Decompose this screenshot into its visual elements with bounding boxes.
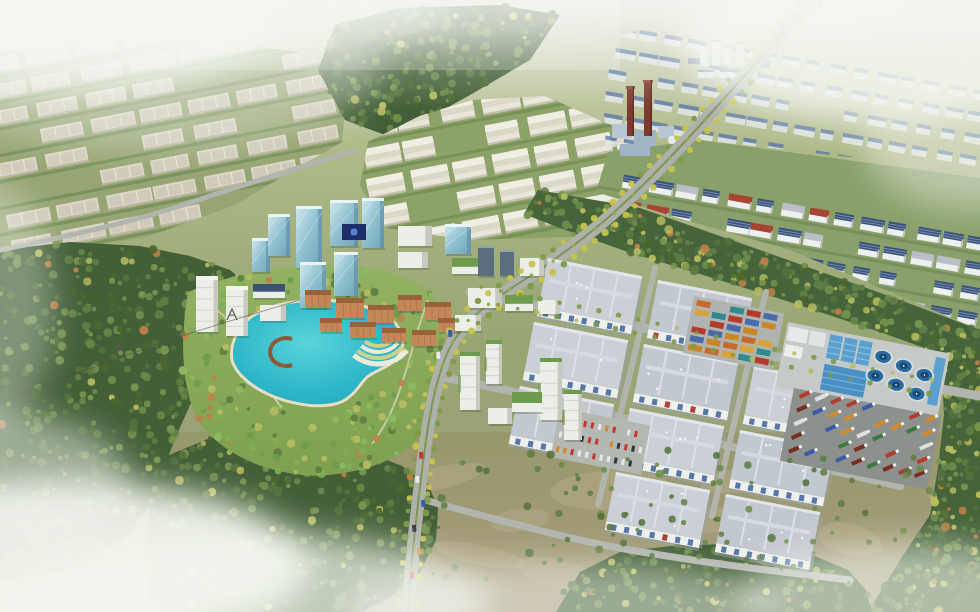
tree-canopy — [398, 529, 402, 533]
median-tree — [451, 340, 455, 344]
tree-canopy — [251, 486, 258, 493]
tree-canopy — [193, 464, 201, 472]
brick-building — [382, 328, 407, 344]
dark-tower — [478, 246, 494, 276]
tree-canopy — [331, 525, 336, 530]
roadside-tree — [850, 363, 856, 369]
median-tree — [487, 303, 491, 307]
park-tree — [196, 415, 203, 422]
tree-canopy — [87, 252, 92, 257]
tree-canopy — [88, 395, 94, 401]
tree-canopy — [145, 364, 149, 368]
roadside-tree — [613, 326, 619, 332]
park-tree — [347, 463, 353, 469]
tree-canopy — [953, 351, 962, 360]
window-band — [540, 383, 562, 384]
tree-canopy — [179, 464, 185, 470]
roadside-tree — [949, 381, 953, 385]
scrub-tree — [564, 491, 568, 495]
roadside-tree — [554, 314, 560, 320]
tree-canopy — [138, 291, 146, 299]
tree-canopy — [294, 478, 300, 484]
scrub-tree — [664, 447, 671, 454]
facade-line — [375, 310, 376, 323]
scrub-tree — [962, 526, 967, 531]
tree-canopy — [237, 467, 245, 475]
park-tree — [361, 439, 367, 445]
boulevard-tree — [668, 166, 675, 173]
tree-canopy — [152, 290, 158, 296]
facade-line — [418, 335, 419, 346]
tree-canopy — [627, 239, 633, 245]
park-tree — [281, 410, 286, 415]
boulevard-tree — [610, 199, 617, 206]
tree-canopy — [941, 462, 949, 470]
roadside-tree — [518, 293, 522, 297]
scrub-tree — [611, 532, 615, 536]
tree-canopy — [692, 265, 700, 273]
scrub-tree — [609, 486, 614, 491]
tree-canopy — [961, 483, 968, 490]
tree-canopy — [162, 283, 170, 291]
tree-canopy — [218, 452, 224, 458]
window-band — [564, 400, 582, 401]
median-tree — [428, 414, 432, 418]
park-tree — [208, 393, 216, 401]
window-band — [226, 296, 248, 297]
building-shade — [281, 305, 286, 321]
facade-line — [350, 303, 351, 318]
park-tree — [393, 406, 397, 410]
park-tree — [248, 452, 252, 456]
roadside-tree — [848, 377, 852, 381]
tree-canopy — [952, 405, 961, 414]
tree-canopy — [353, 478, 357, 482]
tree-canopy — [901, 299, 905, 303]
tree-canopy — [160, 389, 166, 395]
tree-canopy — [137, 284, 141, 288]
scrub-tree — [944, 515, 948, 519]
tree-canopy — [808, 303, 817, 312]
tower-cap — [252, 238, 270, 241]
tree-canopy — [608, 226, 614, 232]
median-tree — [412, 543, 416, 547]
scrub-tree — [820, 455, 827, 462]
park-tree — [378, 413, 385, 420]
tree-canopy — [172, 324, 176, 328]
glass-building — [296, 206, 323, 270]
park-tree — [260, 452, 264, 456]
tree-canopy — [389, 466, 396, 473]
scrub-tree — [820, 469, 827, 476]
roadside-tree — [831, 359, 836, 364]
scrub-tree — [625, 457, 629, 461]
scrub-tree — [476, 466, 483, 473]
brick-building — [350, 322, 377, 340]
tree-canopy — [969, 497, 974, 502]
park-tree — [194, 380, 201, 387]
roadside-tree — [655, 322, 659, 326]
tree-canopy — [626, 231, 634, 239]
tree-canopy — [336, 486, 343, 493]
tree-canopy — [537, 201, 541, 205]
tree-canopy — [391, 534, 396, 539]
tower-cap — [445, 224, 471, 227]
park-tree — [387, 391, 392, 396]
roadside-tree — [772, 346, 778, 352]
park-tree — [308, 423, 316, 431]
boulevard-tree — [420, 405, 425, 410]
dark-building — [500, 250, 515, 278]
boulevard-tree — [407, 495, 413, 501]
roadside-tree — [947, 395, 951, 399]
boulevard-tree — [660, 176, 665, 181]
tree-canopy — [111, 429, 115, 433]
tree-canopy — [107, 316, 114, 323]
tree-canopy — [36, 409, 41, 414]
tree-canopy — [643, 221, 647, 225]
tree-canopy — [947, 425, 951, 429]
building-shadow — [565, 440, 583, 442]
boulevard-tree — [612, 222, 618, 228]
roadside-tree — [769, 360, 774, 365]
facade-line — [370, 327, 371, 338]
tree-canopy — [528, 203, 536, 211]
tree-canopy — [970, 528, 975, 533]
tree-canopy — [210, 262, 215, 267]
tree-canopy — [924, 527, 931, 534]
tree-canopy — [233, 486, 240, 493]
tree-canopy — [350, 116, 356, 122]
tree-canopy — [286, 484, 290, 488]
scrub-tree — [900, 528, 907, 535]
tree-canopy — [376, 508, 383, 515]
park-tree — [345, 449, 349, 453]
park-tree — [249, 444, 256, 451]
boulevard-tree — [442, 384, 447, 389]
park-tree — [358, 448, 366, 456]
tree-canopy — [221, 492, 227, 498]
tree-canopy — [86, 339, 95, 348]
plant-building — [620, 144, 650, 156]
tree-canopy — [65, 347, 70, 352]
boulevard-tree — [433, 433, 438, 438]
park-tree — [368, 394, 375, 401]
scrub-tree — [535, 466, 541, 472]
tree-canopy — [639, 235, 646, 242]
park-tree — [333, 416, 340, 423]
median-tree — [631, 193, 635, 197]
tree-canopy — [284, 507, 290, 513]
scrub-tree — [681, 499, 687, 505]
window-band — [486, 358, 502, 359]
tree-canopy — [859, 285, 865, 291]
scrub-tree — [524, 502, 532, 510]
tower-roof — [196, 276, 218, 280]
tree-canopy — [203, 458, 207, 462]
facade-line — [444, 323, 445, 332]
tree-canopy — [360, 116, 367, 123]
tree-canopy — [781, 293, 785, 297]
scrub-tree — [811, 467, 816, 472]
boulevard-tree — [462, 339, 467, 344]
boulevard-tree — [632, 203, 637, 208]
window-band — [196, 287, 218, 288]
tree-canopy — [135, 391, 142, 398]
masterplan-scene: Aerial 3D rendering of a large eco-indus… — [0, 0, 980, 612]
tree-canopy — [160, 259, 164, 263]
tree-canopy — [580, 208, 586, 214]
tree-canopy — [117, 326, 123, 332]
tree-canopy — [660, 258, 665, 263]
scrub-tree — [572, 485, 578, 491]
blue-roof-building — [253, 284, 286, 300]
tree-canopy — [353, 517, 360, 524]
facade-line — [381, 310, 382, 323]
park-tree — [300, 441, 308, 449]
tree-canopy — [554, 212, 559, 217]
building-shadow — [506, 311, 534, 313]
park-tree — [390, 426, 395, 431]
roadside-tree — [557, 301, 561, 305]
tree-canopy — [117, 280, 122, 285]
building-shade — [214, 276, 218, 332]
park-tree — [221, 397, 226, 402]
tree-canopy — [935, 322, 939, 326]
scrub-tree — [926, 487, 933, 494]
facade-line — [416, 300, 417, 311]
tree-canopy — [318, 488, 325, 495]
tree-canopy — [950, 515, 955, 520]
building-shadow — [487, 384, 503, 386]
brick-roof — [382, 328, 406, 333]
tree-canopy — [146, 293, 153, 300]
facade-line — [326, 323, 327, 332]
scrub-tree — [835, 516, 840, 521]
scrub-tree — [713, 518, 716, 521]
facade-line — [388, 310, 389, 323]
window-band — [460, 375, 480, 376]
tree-canopy — [184, 462, 192, 470]
dark-tower — [500, 250, 514, 276]
window-band — [564, 430, 582, 431]
tree-canopy — [754, 287, 763, 296]
tree-canopy — [936, 459, 942, 465]
boulevard-tree — [549, 269, 556, 276]
tree-canopy — [404, 467, 411, 474]
tree-canopy — [97, 335, 102, 340]
tree-canopy — [181, 393, 188, 400]
tree-canopy — [911, 333, 919, 341]
tree-canopy — [676, 254, 685, 263]
tower-green-building — [484, 340, 503, 386]
tree-canopy — [664, 225, 673, 234]
scrub-tree — [749, 481, 753, 485]
boulevard-tree — [704, 127, 711, 134]
tree-canopy — [187, 273, 195, 281]
tree-canopy — [969, 419, 974, 424]
tree-canopy — [146, 461, 151, 466]
tree-canopy — [709, 239, 714, 244]
boulevard-tree — [404, 521, 410, 527]
scrub-tree — [601, 467, 607, 473]
tree-canopy — [962, 354, 966, 358]
tree-canopy — [660, 238, 667, 245]
boulevard-tree — [426, 485, 432, 491]
boulevard-tree — [638, 172, 644, 178]
boulevard-tree — [420, 536, 426, 542]
tree-canopy — [136, 277, 141, 282]
park-tree — [179, 366, 188, 375]
tree-canopy — [638, 214, 642, 218]
tree-canopy — [823, 306, 828, 311]
scrub-tree — [877, 484, 881, 488]
boulevard-tree — [446, 371, 452, 377]
tree-canopy — [76, 275, 80, 279]
tree-canopy — [878, 300, 886, 308]
scrub-tree — [638, 519, 645, 526]
aerial-masterplan-rendering: Aerial 3D rendering of a large eco-indus… — [0, 0, 980, 612]
window-band — [460, 364, 480, 365]
median-tree — [703, 118, 707, 122]
tree-canopy — [80, 391, 87, 398]
brick-building — [305, 290, 332, 310]
scrub-tree — [830, 531, 834, 535]
park-tree — [287, 439, 295, 447]
boulevard-tree — [619, 190, 625, 196]
tree-canopy — [947, 507, 951, 511]
roadside-tree — [616, 312, 621, 317]
tree-canopy — [108, 376, 116, 384]
median-tree — [551, 259, 555, 263]
scrub-tree — [527, 450, 535, 458]
tree-canopy — [682, 263, 690, 271]
roadside-tree — [652, 335, 657, 340]
tree-canopy — [675, 231, 680, 236]
tree-canopy — [659, 248, 665, 254]
facade-line — [357, 303, 358, 318]
park-tree — [207, 405, 212, 410]
tree-canopy — [152, 438, 158, 444]
park-tree — [275, 468, 281, 474]
roadside-tree — [479, 285, 483, 289]
tree-canopy — [587, 209, 593, 215]
tree-canopy — [800, 267, 807, 274]
tree-canopy — [971, 350, 975, 354]
tree-canopy — [79, 398, 85, 404]
roadside-tree — [633, 331, 638, 336]
tree-canopy — [544, 207, 552, 215]
tree-canopy — [73, 268, 78, 273]
scrub-tree — [620, 540, 627, 547]
roadside-tree — [910, 374, 914, 378]
building-shadow — [399, 268, 429, 270]
park-tree — [364, 269, 370, 275]
tree-canopy — [939, 480, 946, 487]
park-tree — [254, 423, 262, 431]
tree-canopy — [179, 451, 187, 459]
park-tree — [332, 461, 340, 469]
tree-canopy — [161, 470, 167, 476]
tree-canopy — [558, 209, 565, 216]
car-on-road — [448, 330, 452, 337]
scrub-tree — [649, 553, 654, 558]
tree-canopy — [633, 222, 638, 227]
tree-canopy — [73, 403, 80, 410]
tree-canopy — [561, 193, 568, 200]
boulevard-tree — [528, 283, 534, 289]
park-tree — [273, 437, 279, 443]
scrub-tree — [812, 506, 817, 511]
tree-canopy — [130, 418, 139, 427]
facade-line — [400, 333, 401, 342]
park-tree — [247, 432, 253, 438]
tree-canopy — [733, 254, 742, 263]
car-on-road — [412, 525, 416, 532]
tree-canopy — [42, 399, 46, 403]
tree-canopy — [623, 242, 627, 246]
tree-canopy — [389, 482, 393, 486]
tree-canopy — [393, 114, 402, 123]
tree-canopy — [939, 338, 947, 346]
tree-canopy — [950, 487, 957, 494]
roadside-tree — [792, 351, 796, 355]
scrub-tree — [911, 455, 917, 461]
tree-canopy — [201, 481, 206, 486]
car-on-road — [421, 500, 425, 507]
brick-roof — [320, 318, 342, 323]
building-shadow — [227, 336, 249, 338]
dark-tower-cap — [500, 250, 514, 252]
park-tree — [236, 386, 244, 394]
car-on-road — [415, 476, 419, 483]
park-tree — [246, 274, 252, 280]
park-tree — [429, 292, 433, 296]
tree-canopy — [89, 332, 93, 336]
scrub-tree — [669, 494, 674, 499]
tree-canopy — [122, 319, 127, 324]
tree-canopy — [867, 292, 873, 298]
tower-roof — [486, 340, 502, 344]
facade-line — [430, 335, 431, 346]
boulevard-tree — [507, 298, 512, 303]
tree-canopy — [95, 321, 103, 329]
scrub-tree — [710, 480, 716, 486]
window-band — [564, 410, 582, 411]
tree-canopy — [168, 436, 176, 444]
park-tree — [203, 361, 208, 366]
facade-line — [337, 323, 338, 332]
tower-roof — [460, 352, 480, 356]
tree-canopy — [667, 254, 675, 262]
tree-canopy — [169, 405, 174, 410]
dark-building — [478, 246, 495, 278]
tree-canopy — [873, 308, 877, 312]
boulevard-tree — [571, 232, 575, 236]
scrub-tree — [655, 463, 659, 467]
tree-canopy — [145, 274, 151, 280]
green-terrace — [562, 410, 565, 425]
roadside-tree — [499, 289, 503, 293]
tree-canopy — [903, 314, 909, 320]
scrub-tree — [767, 534, 775, 542]
tree-canopy — [749, 250, 753, 254]
boulevard-tree — [468, 328, 475, 335]
tree-canopy — [950, 398, 954, 402]
tree-canopy — [940, 448, 944, 452]
park-tree — [352, 426, 357, 431]
building-shadow — [351, 338, 377, 340]
